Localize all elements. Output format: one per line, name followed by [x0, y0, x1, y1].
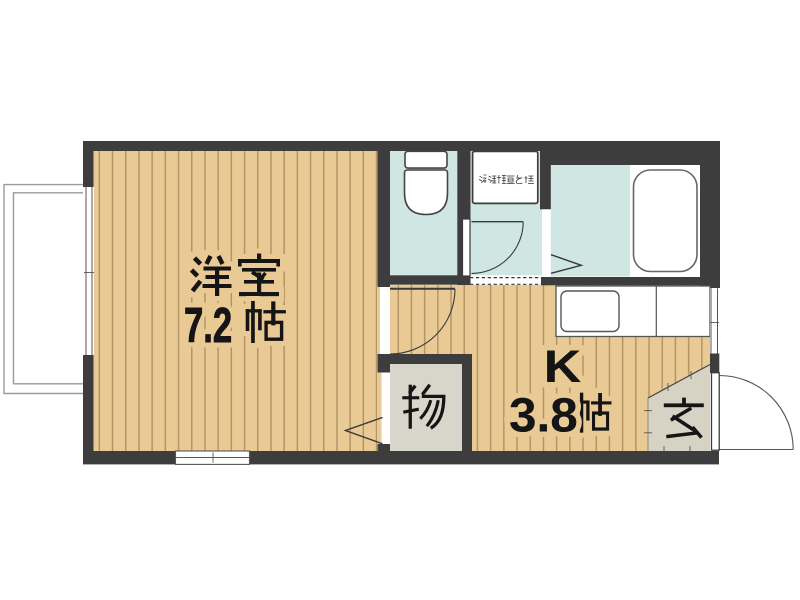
svg-text:K: K — [544, 342, 581, 392]
svg-text:3.8: 3.8 — [509, 389, 578, 442]
svg-text:7.2: 7.2 — [184, 298, 232, 352]
